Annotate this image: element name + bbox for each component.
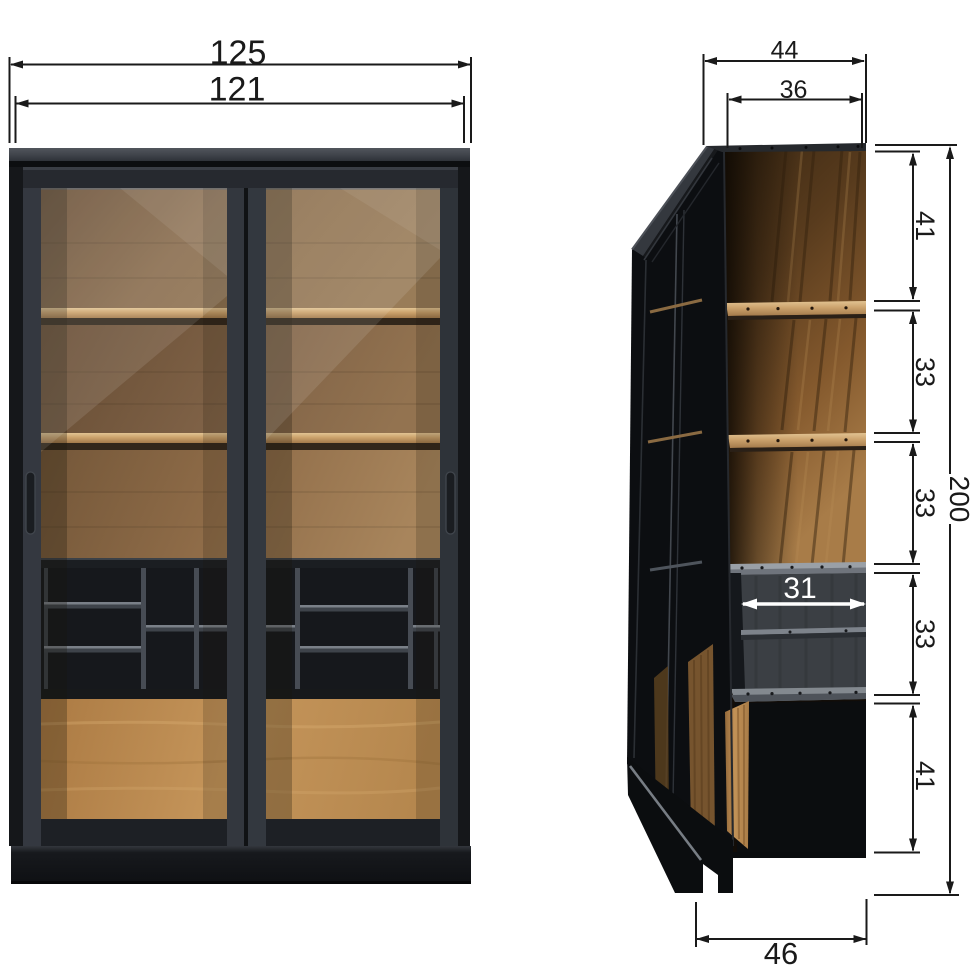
svg-text:31: 31: [783, 572, 816, 605]
svg-text:121: 121: [209, 71, 266, 109]
svg-text:46: 46: [764, 936, 798, 971]
svg-text:200: 200: [944, 476, 970, 523]
svg-text:33: 33: [910, 357, 940, 387]
svg-text:125: 125: [210, 34, 267, 72]
svg-text:36: 36: [780, 76, 808, 104]
svg-text:33: 33: [910, 488, 940, 518]
svg-text:44: 44: [771, 37, 799, 65]
svg-text:41: 41: [910, 211, 940, 241]
svg-text:41: 41: [910, 761, 940, 791]
svg-text:33: 33: [910, 619, 940, 649]
